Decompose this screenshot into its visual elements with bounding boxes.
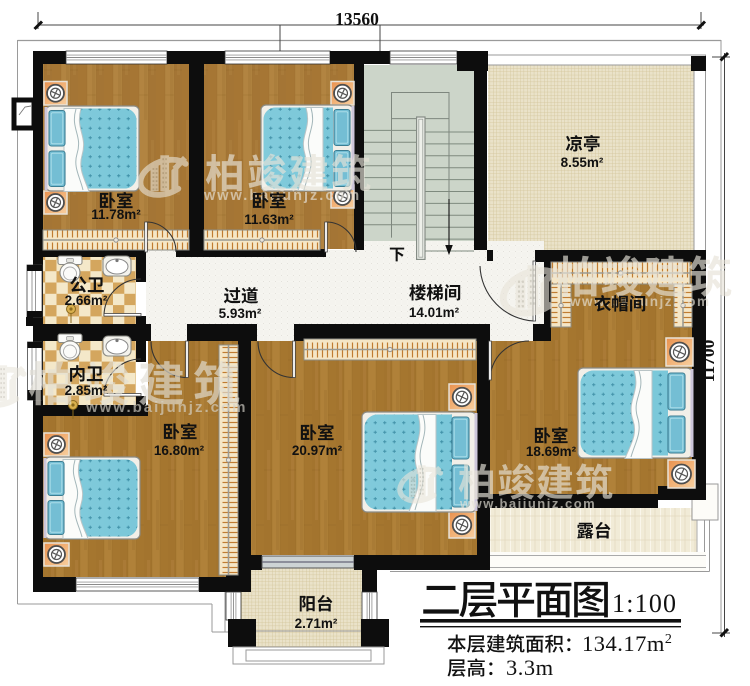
svg-text:2.85m²: 2.85m² — [65, 383, 108, 398]
svg-text:11.63m²: 11.63m² — [244, 212, 294, 227]
svg-text:13560: 13560 — [335, 9, 379, 29]
svg-text:1:100: 1:100 — [612, 589, 677, 618]
svg-text:2.66m²: 2.66m² — [65, 293, 108, 308]
svg-text:www.baijunjz.com: www.baijunjz.com — [85, 399, 247, 416]
svg-text:www.baijunjz.com: www.baijunjz.com — [459, 496, 596, 511]
svg-text:www.baijunjz.com: www.baijunjz.com — [203, 188, 361, 204]
svg-text:18.69m²: 18.69m² — [526, 444, 577, 459]
svg-text:16.80m²: 16.80m² — [154, 443, 205, 458]
svg-text:20.97m²: 20.97m² — [292, 443, 343, 458]
svg-text:14.01m²: 14.01m² — [409, 305, 460, 320]
svg-text:11.78m²: 11.78m² — [91, 207, 141, 222]
svg-text:8.55m²: 8.55m² — [561, 155, 604, 170]
svg-text:5.93m²: 5.93m² — [219, 306, 262, 321]
svg-text:2.71m²: 2.71m² — [295, 616, 338, 631]
svg-text:3.3m: 3.3m — [506, 655, 554, 680]
svg-text:134.17m2: 134.17m2 — [582, 631, 672, 656]
